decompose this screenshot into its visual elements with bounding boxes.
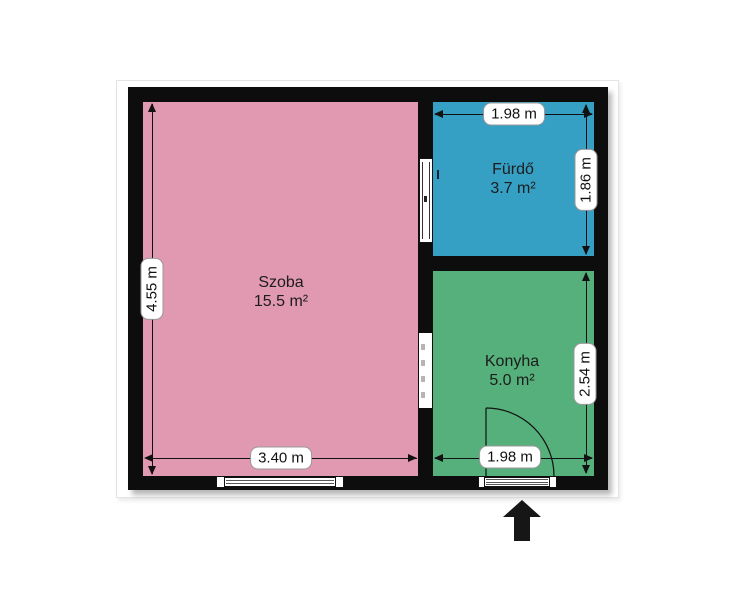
window-szoba-endcap-right	[335, 476, 344, 488]
window-szoba	[224, 477, 336, 487]
dimension-label-szoba-height: 4.55 m	[141, 258, 164, 320]
arrowhead	[434, 110, 443, 118]
room-label-szoba: Szoba 15.5 m²	[254, 273, 308, 311]
dimension-label-furdo-width: 1.98 m	[483, 103, 545, 126]
door-entrance-line	[486, 479, 548, 480]
dimension-label-konyha-width: 1.98 m	[479, 446, 541, 469]
dimension-label-konyha-height: 2.54 m	[574, 343, 597, 405]
arrowhead	[144, 454, 153, 462]
room-label-konyha: Konyha 5.0 m²	[485, 352, 539, 390]
room-name: Fürdő	[490, 160, 535, 179]
door-furdo-wall-tick	[437, 170, 439, 179]
dimension-label-szoba-width: 3.40 m	[250, 447, 312, 470]
window-szoba-glass-line	[226, 480, 334, 481]
arrowhead	[582, 104, 590, 113]
window-interior-dash	[421, 344, 425, 350]
wall-top	[128, 87, 608, 102]
arrowhead	[582, 272, 590, 281]
window-interior-dash	[421, 392, 425, 398]
door-furdo-frame-line-left	[422, 162, 423, 239]
door-furdo-frame-line-right	[429, 162, 430, 239]
entrance-arrow-head	[503, 500, 541, 517]
dimension-label-furdo-height: 1.86 m	[575, 149, 598, 211]
door-entrance-endcap-right	[549, 476, 557, 488]
room-name: Szoba	[254, 273, 308, 292]
arrowhead	[434, 454, 443, 462]
entrance-arrow-shaft	[514, 517, 530, 541]
arrowhead	[148, 103, 156, 112]
window-szoba-endcap-left	[216, 476, 225, 488]
room-area: 5.0 m²	[485, 371, 539, 390]
door-furdo-handle-tick	[424, 196, 427, 202]
arrowhead	[148, 466, 156, 475]
arrowhead	[584, 454, 593, 462]
door-entrance-line	[486, 484, 548, 485]
room-label-furdo: Fürdő 3.7 m²	[490, 160, 535, 198]
window-interior-dash	[421, 360, 425, 366]
room-name: Konyha	[485, 352, 539, 371]
door-entrance-endcap-left	[478, 476, 485, 488]
window-szoba-glass-line	[226, 483, 334, 484]
arrowhead	[582, 246, 590, 255]
window-interior-dash	[421, 376, 425, 382]
arrowhead	[582, 465, 590, 474]
arrowhead	[408, 454, 417, 462]
wall-divider-horizontal	[418, 256, 594, 271]
floorplan-page: 4.55 m 3.40 m 1.98 m 1.86 m 2.54 m 1.98 …	[0, 0, 730, 602]
room-area: 3.7 m²	[490, 179, 535, 198]
door-entrance-line	[486, 482, 548, 483]
room-area: 15.5 m²	[254, 292, 308, 311]
